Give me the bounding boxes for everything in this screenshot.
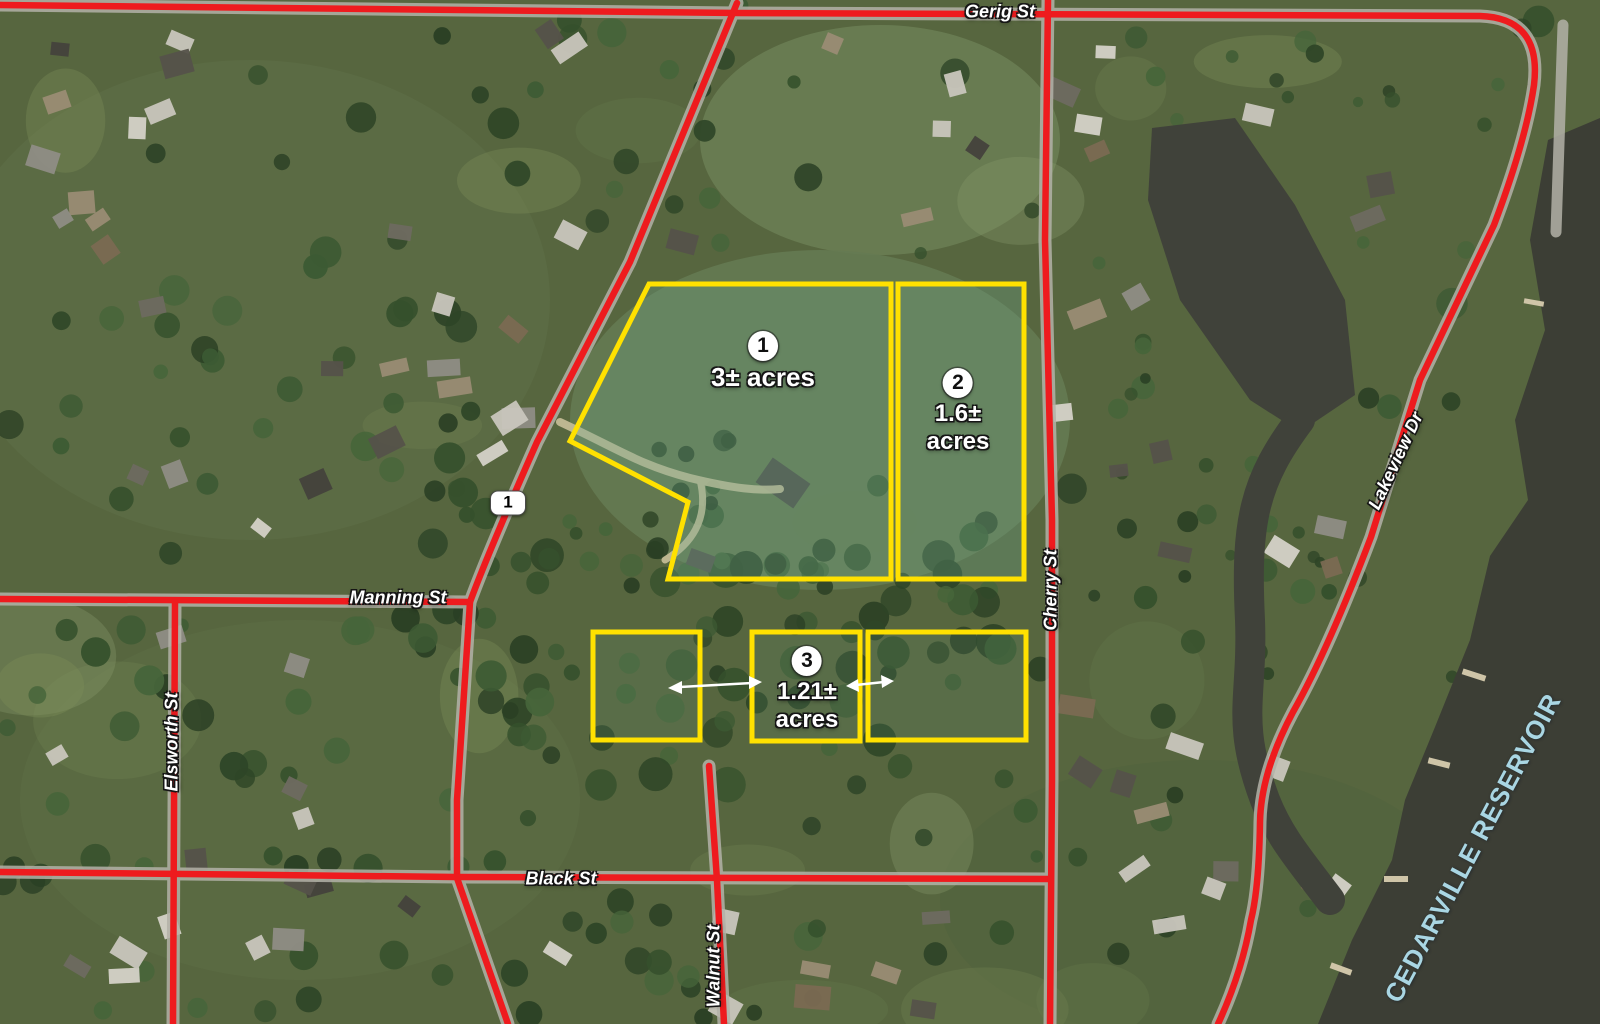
parcel-3-right-outline	[868, 632, 1026, 740]
street-label-elsworth: Elsworth St	[162, 692, 183, 791]
parcel-2-acreage: 1.6±	[935, 401, 982, 426]
parcel-1-label: 1 3± acres	[711, 331, 815, 394]
street-label-cherry: Cherry St	[1041, 549, 1062, 630]
aerial-map-canvas	[0, 0, 1600, 1024]
street-label-black: Black St	[525, 869, 596, 890]
parcel-3-acreage: 1.21±	[777, 679, 837, 704]
route-1-marker: 1	[490, 491, 526, 516]
street-label-gerig: Gerig St	[965, 2, 1035, 23]
parcel-2-acreage-line2: acres	[927, 429, 990, 454]
parcel-1-acreage: 3± acres	[711, 364, 815, 391]
parcel-3-label: 3 1.21± acres	[776, 646, 839, 732]
parcel-3-badge: 3	[792, 646, 822, 676]
street-label-manning: Manning St	[350, 588, 447, 609]
aerial-map-view: Gerig St Manning St Black St Elsworth St…	[0, 0, 1600, 1024]
street-label-walnut: Walnut St	[704, 925, 725, 1008]
parcel-2-badge: 2	[943, 368, 973, 398]
road-elsworth	[173, 601, 175, 1024]
parcel-2-label: 2 1.6± acres	[927, 368, 990, 454]
parcel-3-acreage-line2: acres	[776, 707, 839, 732]
parcel-1-badge: 1	[748, 331, 778, 361]
